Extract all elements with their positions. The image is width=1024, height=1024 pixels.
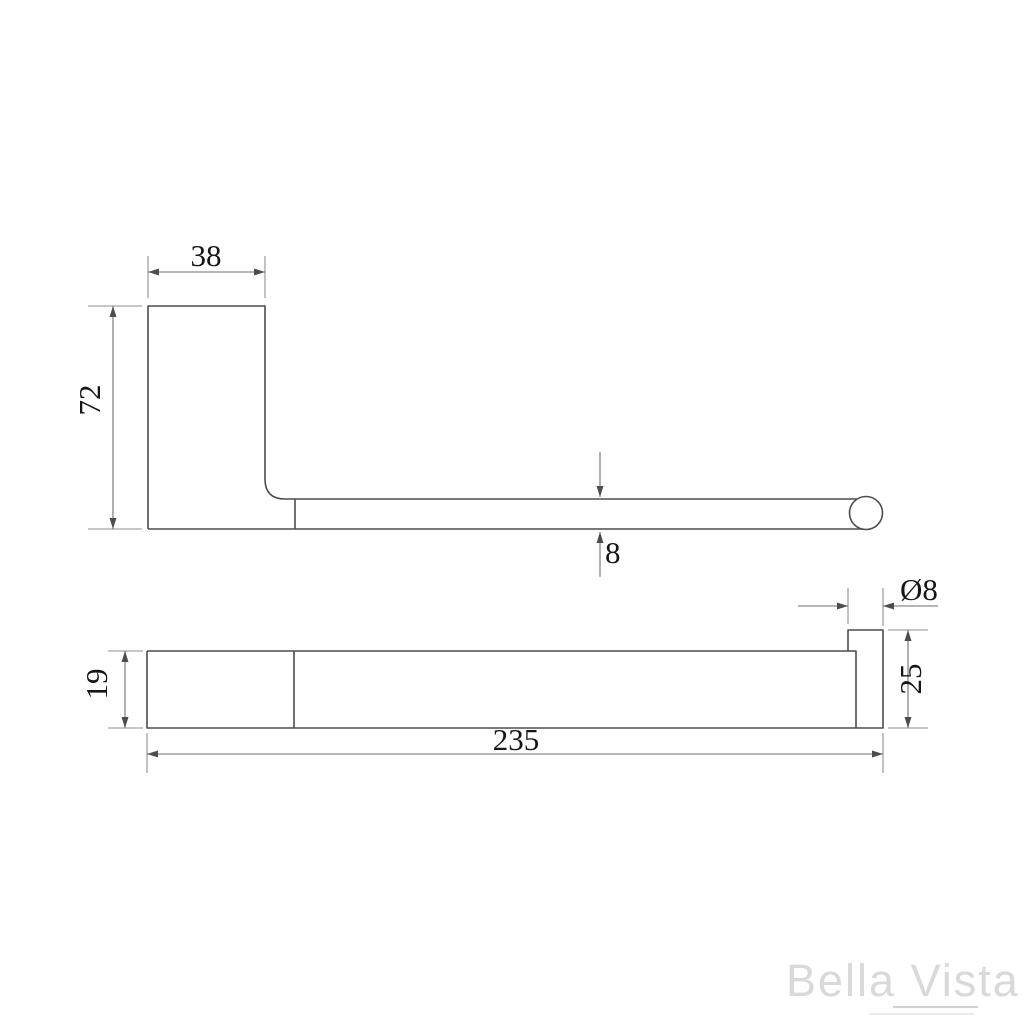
plan-view: 19 Ø8 25 235 (79, 572, 938, 773)
dim-label-end-cap: 25 (893, 664, 928, 695)
dim-label-rod-diameter: Ø8 (900, 572, 938, 607)
dim-label-body-depth: 19 (79, 669, 114, 700)
dim-end-cap: 25 (888, 630, 928, 728)
dim-label-rail-thickness: 8 (605, 535, 621, 570)
dim-rail-thickness: 8 (600, 452, 621, 577)
dim-plate-height: 72 (72, 306, 142, 529)
brand-watermark: Bella Vista (786, 955, 1020, 1014)
bracket-rail-profile (148, 306, 866, 529)
dim-plate-width: 38 (148, 238, 265, 298)
side-view: 38 72 8 (72, 238, 883, 577)
dim-label-plate-width: 38 (191, 238, 222, 273)
dim-overall-length: 235 (147, 722, 883, 773)
rail-plan-outline (147, 630, 883, 728)
dim-body-depth: 19 (79, 651, 143, 728)
brand-watermark-text: Bella Vista (786, 955, 1020, 1006)
dim-label-plate-height: 72 (72, 385, 107, 416)
rod-end-circle (850, 497, 883, 530)
dim-label-overall-length: 235 (493, 722, 540, 757)
dim-rod-diameter: Ø8 (798, 572, 938, 626)
drawing-sheet: 38 72 8 (0, 0, 1024, 1024)
technical-drawing: 38 72 8 (0, 0, 1024, 1024)
